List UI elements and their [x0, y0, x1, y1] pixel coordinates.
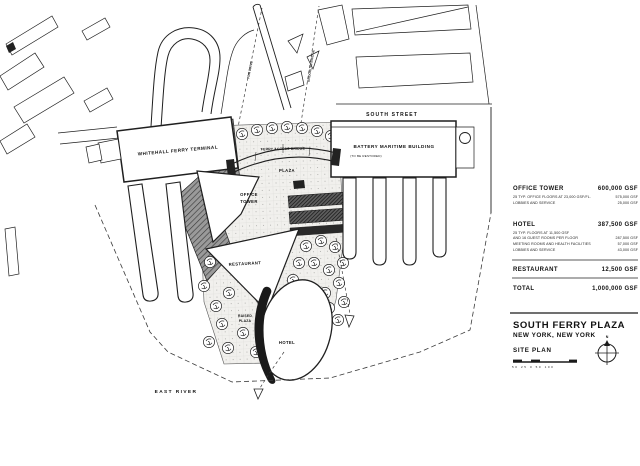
program-hotel-item2: MEETING ROOMS AND HEALTH FACILITIES [513, 242, 591, 246]
bmb-label-line1: BATTERY MARITIME BUILDING [353, 144, 434, 149]
program-office-item2: LOBBIES AND SERVICE [513, 201, 556, 205]
program-hotel-item1b: AND 16 GUEST ROOMS PER FLOOR [513, 236, 578, 240]
office-tower-label-line2: TOWER [240, 199, 258, 204]
raised-plaza-label: RAISED PLAZA [238, 314, 252, 323]
whitehall-pier-1 [128, 184, 158, 301]
bmb-pier-3 [403, 178, 416, 265]
bmb-pier-4 [433, 178, 446, 257]
project-title: SOUTH FERRY PLAZA [513, 320, 625, 331]
south-street-label: SOUTH STREET [366, 112, 418, 118]
ferry-access-bridge-label: FERRY ACCESS BRIDGE [261, 147, 306, 152]
raised-plaza-line1: RAISED [238, 314, 252, 318]
program-total-value: 1,000,000 GSF [592, 286, 638, 292]
program-hotel-name: HOTEL [513, 222, 535, 228]
bmb-pier-2 [373, 178, 386, 265]
fdr-ramp-strip [253, 4, 291, 110]
program-hotel-item2-value: 57,000 GSF [618, 242, 639, 246]
ferry-route-arrow-southeast [345, 315, 354, 327]
title-block: SOUTH FERRY PLAZA NEW YORK, NEW YORK SIT… [510, 313, 638, 369]
raised-plaza-line2: PLAZA [239, 319, 252, 323]
plaza-label: PLAZA [279, 168, 295, 173]
program-hotel-item1-value: 287,500 GSF [616, 236, 639, 240]
program-total-name: TOTAL [513, 286, 534, 292]
ferry-route-arrow-south [254, 389, 263, 399]
program-office-total: 600,000 GSF [598, 186, 638, 192]
scale-bar: 50 25 0 50 100 [512, 360, 577, 369]
scale-ticks: 50 25 0 50 100 [512, 365, 554, 369]
bmb-label-line2: (TO BE RESTORED) [350, 154, 382, 158]
north-arrow-icon: N [595, 335, 619, 365]
bmb-pier-1 [343, 178, 356, 259]
program-hotel-total: 387,500 GSF [598, 222, 638, 228]
office-tower-label-line1: OFFICE [240, 192, 258, 197]
site-plan-drawing: SOUTH STREET FDR DRIVE BROOKLYN BRIDGE [0, 0, 640, 466]
program-office-item2-value: 25,000 GSF [618, 201, 639, 205]
east-river-label: EAST RIVER [155, 389, 198, 395]
program-hotel-item3: LOBBIES AND SERVICE [513, 248, 556, 252]
project-location: NEW YORK, NEW YORK [513, 332, 596, 339]
program-restaurant-name: RESTAURANT [513, 267, 558, 273]
program-office-item1-value: 575,000 GSF [616, 195, 639, 199]
sight-line-left-label: FDR DRIVE [246, 60, 253, 79]
program-hotel-item1a: 25 TYP. FLOORS AT 11,500 GSF [513, 231, 570, 235]
program-table: OFFICE TOWER 600,000 GSF 25 TYP. OFFICE … [512, 186, 639, 292]
hotel-label: HOTEL [279, 340, 295, 345]
program-office-name: OFFICE TOWER [513, 186, 564, 192]
battery-maritime-building: BATTERY MARITIME BUILDING (TO BE RESTORE… [331, 121, 474, 265]
north-label: N [606, 335, 609, 339]
program-hotel-item3-value: 43,000 GSF [618, 248, 639, 252]
program-office-item1: 25 TYP. OFFICE FLOORS AT 23,000 GSF/FL. [513, 195, 591, 199]
sheet-title: SITE PLAN [513, 347, 552, 354]
program-restaurant-total: 12,500 GSF [602, 267, 638, 273]
